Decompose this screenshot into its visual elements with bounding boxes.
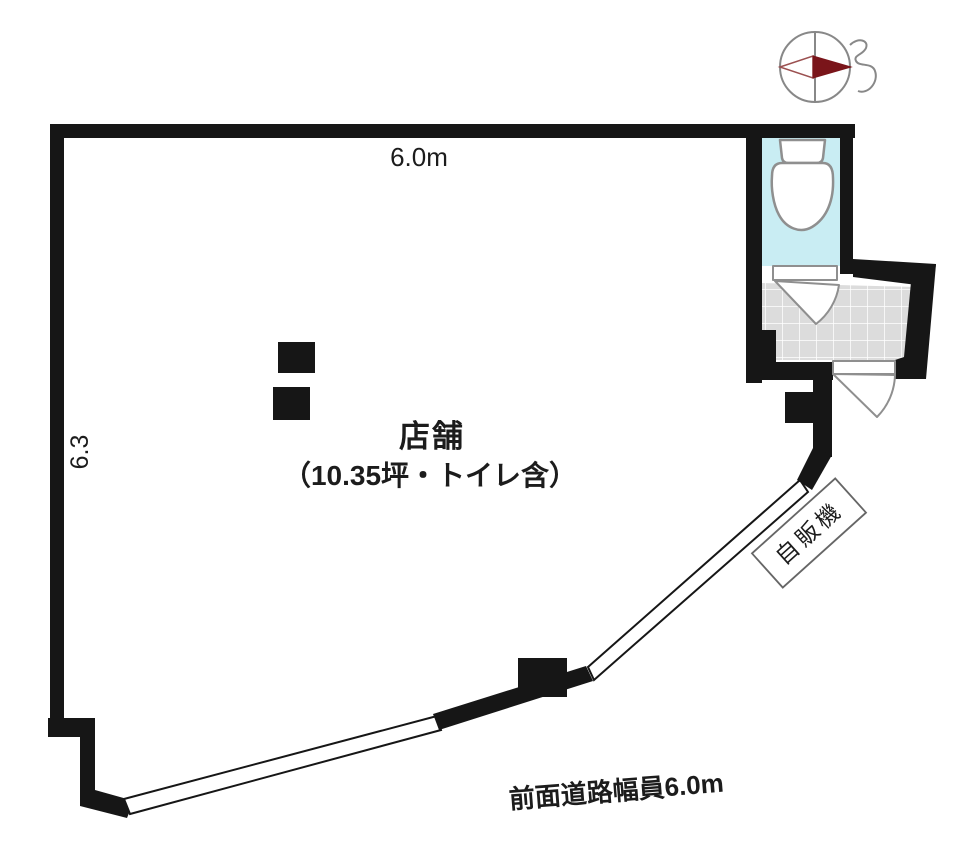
- top-wall: [50, 124, 855, 138]
- toilet-icon: [772, 140, 833, 230]
- compass-needle-west: [780, 56, 813, 78]
- toilet-right-wall: [840, 124, 853, 274]
- shop-pillar-2: [273, 387, 310, 420]
- entry-bottom-wall: [746, 362, 833, 380]
- left-wall-step: [48, 718, 95, 737]
- toilet-left-wall: [746, 124, 762, 383]
- front-wall-diagonal: [433, 666, 593, 730]
- floor-plan: 自販機 6.0m 6.3 店舗 （10.35坪・トイレ含） 前面道路幅員6.0m: [0, 0, 968, 856]
- front-pillar: [518, 658, 567, 697]
- entry-door-swing: [833, 374, 895, 417]
- storefront-window-left: [124, 716, 441, 814]
- compass-needle-east: [813, 56, 851, 78]
- room-name-label: 店舗: [399, 419, 465, 454]
- compass-flourish: [850, 40, 876, 91]
- dimension-left-depth: 6.3: [66, 435, 94, 470]
- toilet-tank: [780, 140, 825, 163]
- compass-icon: [779, 31, 876, 103]
- toilet-door-leaf: [773, 266, 837, 280]
- entry-wall-notch: [762, 330, 776, 363]
- entry-tile-floor: [762, 283, 916, 360]
- interior-pillar-right: [785, 392, 815, 423]
- floor-plan-svg: 自販機 6.0m 6.3 店舗 （10.35坪・トイレ含） 前面道路幅員6.0m: [0, 0, 968, 856]
- dimension-top-width: 6.0m: [390, 142, 448, 172]
- room-detail-label: （10.35坪・トイレ含）: [283, 459, 577, 491]
- entry-door-leaf: [833, 361, 895, 374]
- shop-pillar-1: [278, 342, 315, 373]
- vending-machine: 自販機: [752, 478, 866, 587]
- front-road-label: 前面道路幅員6.0m: [508, 768, 725, 815]
- left-wall: [50, 124, 64, 722]
- entry-door: [833, 361, 895, 417]
